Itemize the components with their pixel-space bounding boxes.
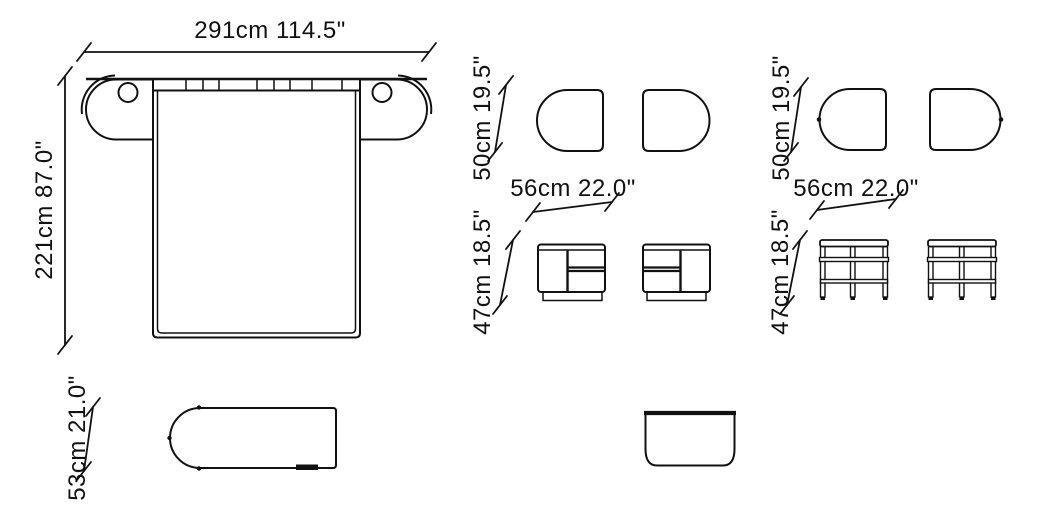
- frame-foot: [821, 297, 826, 301]
- cabinet-plinth: [543, 292, 602, 301]
- dim-line: [533, 202, 612, 212]
- open-nightstand-top-view-right: [930, 89, 1001, 150]
- nightstand-side-view: [644, 413, 736, 466]
- open-width-dim-label: 56cm 22.0": [793, 175, 919, 202]
- frame-top: [928, 240, 996, 247]
- frame-foot: [929, 297, 934, 301]
- bed-depth-dimension: 221cm 87.0": [31, 67, 72, 354]
- dim-line: [500, 240, 513, 305]
- bed-side-view: 53cm 21.0": [64, 375, 336, 501]
- nightstand-open-section: 50cm 19.5" 56cm 22.0" 47cm 18.5": [767, 55, 1003, 335]
- bed-width-dimension: 291cm 114.5": [77, 17, 436, 61]
- bed-mattress-outline: [153, 91, 360, 338]
- closed-nightstand-top-view-right: [643, 90, 710, 151]
- open-height-dimension: 47cm 18.5": [767, 209, 807, 335]
- open-nightstand-front-view-right: [928, 240, 997, 300]
- frame-stretcher: [929, 280, 996, 284]
- closed-nightstand-front-view-right: [643, 245, 710, 301]
- bed-side-drawing: [167, 405, 336, 470]
- bed-width-dim-label: 291cm 114.5": [194, 17, 346, 44]
- closed-width-dim-label: 56cm 22.0": [510, 175, 636, 202]
- open-nightstand-top-view-left: [820, 89, 887, 150]
- dim-line: [495, 85, 506, 152]
- frame-foot: [883, 297, 888, 301]
- diagram-svg: 291cm 114.5" 221cm 87.0": [0, 0, 1042, 507]
- bed-side-foot: [296, 465, 318, 471]
- open-depth-dimension: 50cm 19.5": [768, 55, 808, 181]
- frame-foot: [851, 297, 856, 301]
- seam-dot: [197, 466, 201, 470]
- frame-leg: [851, 247, 856, 298]
- tick-mark: [793, 231, 807, 249]
- tick-mark: [794, 78, 808, 96]
- nightstand-closed-section: 50cm 19.5" 56cm 22.0" 47cm 18.5": [469, 55, 710, 335]
- open-nightstand-front-view-left: [820, 240, 889, 300]
- closed-depth-dim-label: 50cm 19.5": [469, 55, 496, 181]
- frame-shelf: [928, 258, 997, 262]
- frame-leg: [960, 247, 965, 298]
- bed-depth-dim-label: 221cm 87.0": [31, 140, 58, 279]
- bed-side-height-dim-label: 53cm 21.0": [64, 375, 91, 501]
- frame-top: [820, 240, 888, 247]
- tick-mark: [499, 76, 513, 94]
- closed-depth-dimension: 50cm 19.5": [469, 55, 513, 181]
- seam-dot: [197, 405, 201, 409]
- frame-foot: [960, 297, 965, 301]
- closed-width-dimension: 56cm 22.0": [510, 175, 636, 221]
- frame-leg: [929, 247, 934, 298]
- closed-nightstand-front-view-left: [538, 245, 605, 301]
- cabinet-plinth: [647, 292, 706, 301]
- tick-mark: [506, 231, 520, 249]
- frame-stretcher: [821, 280, 888, 284]
- closed-height-dimension: 47cm 18.5": [469, 209, 520, 335]
- frame-leg: [821, 247, 826, 298]
- furniture-dimensions-diagram: 291cm 114.5" 221cm 87.0": [0, 0, 1042, 507]
- bed-side-outline: [170, 408, 336, 468]
- seam-dot: [167, 436, 171, 440]
- nightstand-side-outline: [646, 413, 735, 466]
- open-depth-dim-label: 50cm 19.5": [768, 55, 795, 181]
- bed-drawing: [82, 76, 432, 338]
- bed-side-height-dimension: 53cm 21.0": [64, 375, 100, 501]
- closed-nightstand-top-view-left: [537, 90, 603, 151]
- closed-height-dim-label: 47cm 18.5": [469, 209, 496, 335]
- bed-left-pod-circle: [119, 83, 138, 102]
- knob-dot: [817, 117, 822, 122]
- frame-shelf: [820, 258, 889, 262]
- open-height-dim-label: 47cm 18.5": [767, 209, 794, 335]
- frame-leg: [991, 247, 996, 298]
- frame-foot: [991, 297, 996, 301]
- knob-dot: [999, 117, 1004, 122]
- bed-right-pod-circle: [373, 83, 392, 102]
- frame-leg: [883, 247, 888, 298]
- headboard-panels: [186, 80, 342, 91]
- open-width-dimension: 56cm 22.0": [793, 175, 919, 219]
- bed-top-view: 291cm 114.5" 221cm 87.0": [31, 17, 436, 354]
- bed-right-pod: [360, 80, 427, 140]
